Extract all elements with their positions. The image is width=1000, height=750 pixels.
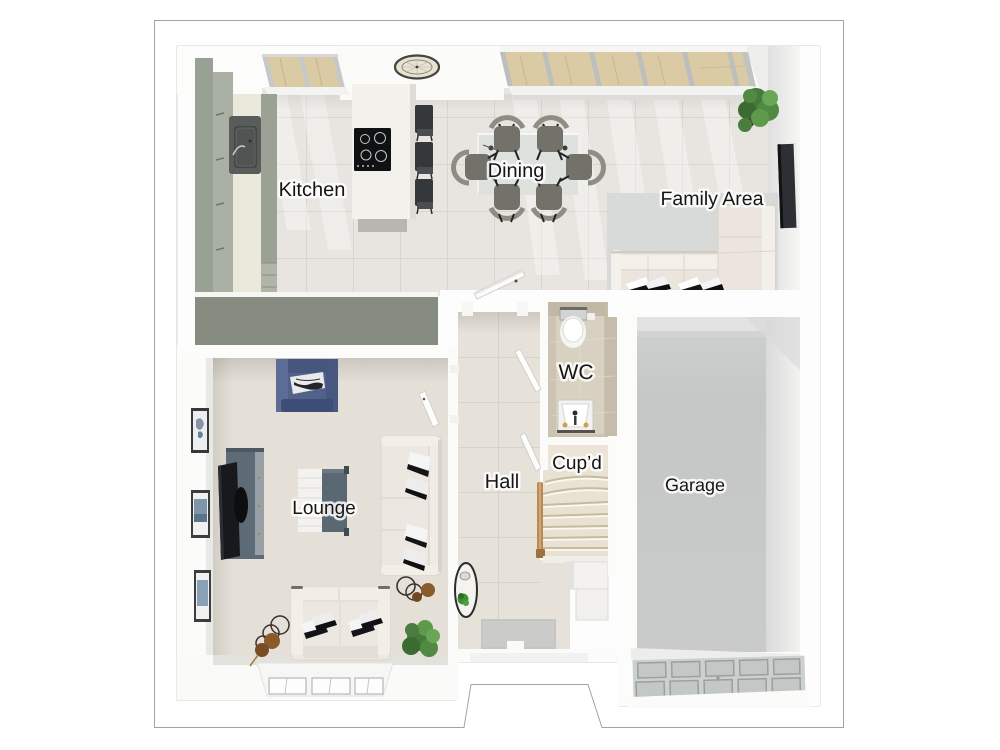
svg-text:Cup’d: Cup’d [552, 453, 602, 474]
svg-text:Family Area: Family Area [661, 188, 764, 210]
svg-text:Hall: Hall [485, 471, 519, 493]
svg-text:Garage: Garage [665, 475, 725, 495]
svg-text:Kitchen: Kitchen [279, 179, 346, 201]
svg-text:Dining: Dining [488, 160, 545, 182]
svg-text:Lounge: Lounge [292, 498, 355, 519]
svg-text:WC: WC [559, 361, 594, 384]
